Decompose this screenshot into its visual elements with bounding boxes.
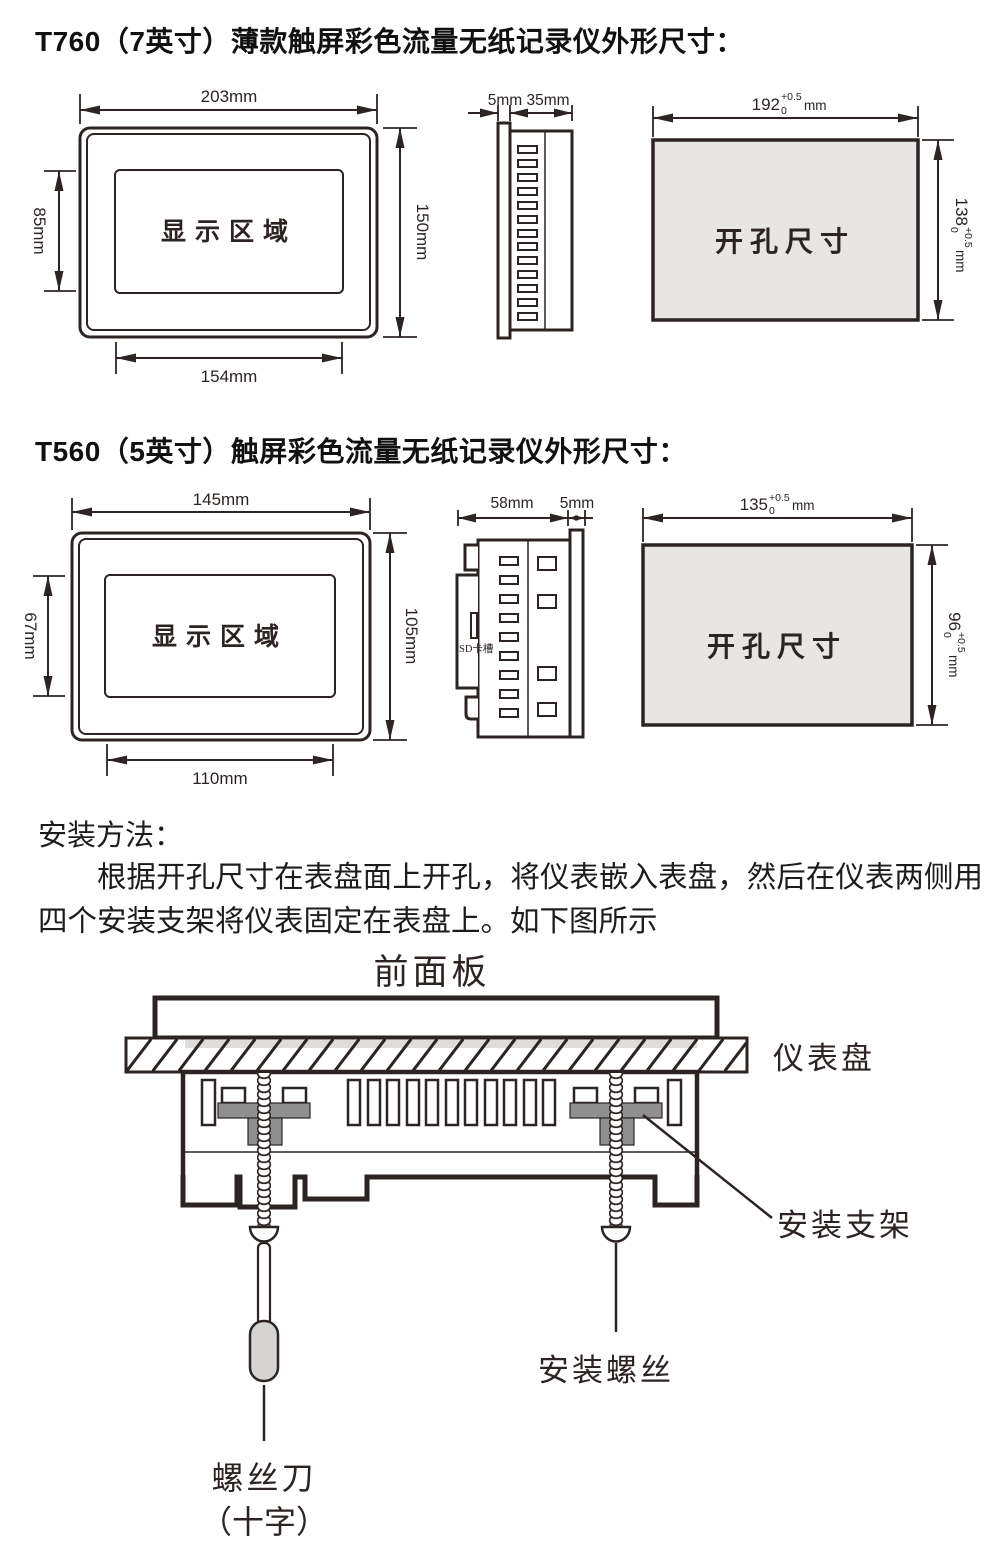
instrument-panel-hatched-bar (126, 1038, 747, 1072)
t560-front-outline: 显示区域 (72, 533, 370, 740)
screwdriver-label-line2: （十字） (200, 1504, 328, 1540)
t560-front-view-diagram: 显示区域 145mm 67mm 105mm (20, 488, 450, 808)
mounting-screw-label: 安装螺丝 (538, 1353, 674, 1388)
dim-tolerance-sub: 0 (769, 505, 775, 517)
dim-label: 192 (752, 95, 780, 114)
dim-label: 5mm (488, 92, 522, 109)
t560-display-area-label: 显示区域 (152, 623, 288, 651)
dim-tolerance-sub: 0 (941, 632, 953, 638)
dim-label: 67mm (21, 612, 40, 659)
t760-front-dim-disp-height: 85mm (30, 171, 76, 291)
dim-label: 5mm (560, 495, 594, 512)
dim-label: 96 (945, 612, 964, 631)
dim-label: 203mm (201, 87, 258, 106)
dim-unit: mm (792, 498, 815, 513)
t560-side-view-diagram: 58mm 5mm SD卡槽 (430, 488, 610, 768)
dim-unit: mm (946, 655, 961, 678)
t560-front-dim-width: 145mm (72, 490, 370, 530)
t760-front-outline: 显示区域 (80, 128, 377, 337)
dim-label: 35mm (526, 92, 569, 109)
t760-front-view-diagram: 显示区域 203mm 85mm 150mm (20, 80, 450, 400)
screwdriver-handle (250, 1321, 278, 1381)
t760-cutout-label: 开孔尺寸 (715, 226, 855, 258)
mounting-bracket-label: 安装支架 (777, 1208, 913, 1243)
t760-side-dims: 5mm 35mm (468, 92, 572, 121)
t760-cutout-dim-height: 138 +0.5 0 mm (922, 140, 974, 320)
screwdriver-shaft (258, 1243, 270, 1325)
t560-side-dims: 58mm 5mm (458, 495, 594, 526)
t760-front-dim-height: 150mm (383, 128, 432, 337)
t560-side-body: SD卡槽 (457, 530, 583, 737)
front-panel-label: 前面板 (373, 953, 490, 992)
dim-tolerance-sup: +0.5 (955, 632, 967, 653)
t760-cutout-dim-width: 192 +0.5 0 mm (653, 91, 918, 137)
dim-label: 135 (740, 495, 768, 514)
t560-cutout-dim-height: 96 +0.5 0 mm (916, 545, 967, 725)
t760-side-view-diagram: 5mm 35mm (460, 80, 600, 360)
t560-front-dim-disp-width: 110mm (107, 744, 333, 788)
dim-label: 105mm (402, 608, 421, 665)
dim-tolerance-sup: +0.5 (781, 91, 802, 103)
dim-label: 150mm (413, 204, 432, 261)
sd-card-slot-label: SD卡槽 (459, 642, 494, 655)
screwdriver-label-line1: 螺丝刀 (211, 1460, 316, 1496)
install-method-paragraph: 根据开孔尺寸在表盘面上开孔，将仪表嵌入表盘，然后在仪表两侧用四个安装支架将仪表固… (38, 856, 983, 945)
dim-unit: mm (804, 98, 827, 113)
dim-label: 85mm (30, 207, 49, 254)
dim-unit: mm (953, 250, 968, 273)
dim-label: 145mm (193, 490, 250, 509)
dim-label: 58mm (490, 495, 533, 512)
sd-card-slot (471, 613, 477, 638)
front-panel (155, 998, 717, 1038)
t560-cutout-dim-width: 135 +0.5 0 mm (643, 492, 912, 542)
dim-tolerance-sub: 0 (948, 227, 960, 233)
t560-section-title: T560（5英寸）触屏彩色流量无纸记录仪外形尺寸： (35, 430, 687, 470)
t560-side-vent-slots (500, 557, 518, 717)
dim-label: 154mm (201, 367, 258, 386)
t760-front-dim-disp-width: 154mm (116, 342, 342, 386)
t760-front-dim-width: 203mm (80, 87, 377, 124)
t760-cutout-diagram: 192 +0.5 0 mm 开孔尺寸 138 +0.5 0 mm (620, 80, 990, 360)
dim-tolerance-sub: 0 (781, 105, 787, 117)
dim-label: 138 (952, 198, 971, 226)
t760-display-area-label: 显示区域 (161, 218, 297, 246)
t560-cutout-diagram: 135 +0.5 0 mm 开孔尺寸 96 +0.5 0 mm (620, 488, 990, 768)
manual-page: T760（7英寸）薄款触屏彩色流量无纸记录仪外形尺寸： T560（5英寸）触屏彩… (0, 0, 990, 1543)
screwdriver (250, 1243, 278, 1441)
dim-tolerance-sup: +0.5 (962, 227, 974, 248)
install-method-heading: 安装方法： (38, 812, 183, 854)
t560-front-dim-height: 105mm (373, 533, 421, 740)
t760-section-title: T760（7英寸）薄款触屏彩色流量无纸记录仪外形尺寸： (35, 20, 744, 60)
dim-tolerance-sup: +0.5 (769, 492, 790, 504)
t760-side-body (498, 123, 572, 338)
dim-label: 110mm (192, 769, 247, 788)
instrument-panel-label: 仪表盘 (773, 1041, 875, 1076)
t560-front-dim-disp-height: 67mm (21, 576, 65, 696)
installation-diagram: 前面板 仪表盘 (100, 940, 990, 1543)
t560-cutout-label: 开孔尺寸 (707, 631, 847, 663)
